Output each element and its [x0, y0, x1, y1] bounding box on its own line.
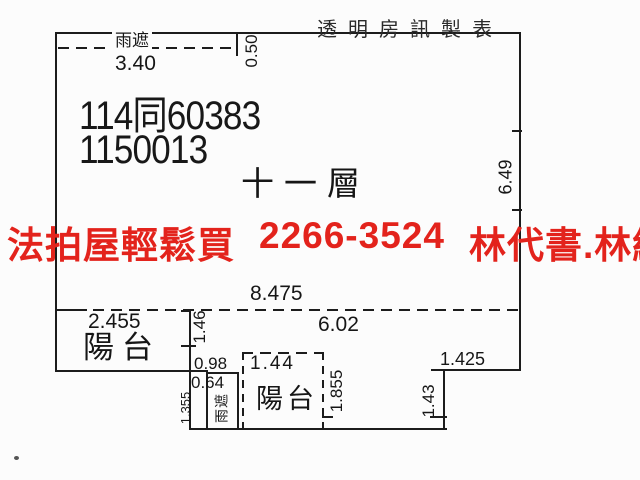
- rain-shelter-top-divider: [236, 32, 238, 56]
- dim-rain-bottom-height: 1.355: [179, 392, 193, 425]
- dim-balcony-bottom-width: 1.44: [250, 354, 295, 374]
- rain-shelter-bottom-label: 雨遮: [215, 393, 230, 423]
- rain-shelter-top-label: 雨遮: [112, 32, 152, 50]
- ad-banner: 法拍屋輕鬆買 2266-3524 林代書.林經理: [7, 215, 640, 269]
- dim-rain-bottom-width: 0.64: [191, 374, 224, 392]
- ad-phone-number: 2266-3524: [259, 215, 445, 269]
- dim-step-height: 1.43: [420, 384, 438, 417]
- serial-number: 1150013: [79, 129, 207, 171]
- tick-balcony-depth-top: [181, 310, 190, 312]
- balcony-left-bottom-wall: [55, 370, 208, 372]
- step-vertical-wall: [443, 369, 445, 430]
- ad-slogan: 法拍屋輕鬆買: [7, 215, 235, 269]
- balcony-left-label: 陽台: [83, 332, 161, 365]
- tick-balcony-depth-bottom: [181, 345, 196, 347]
- floor-label: 十一層: [241, 167, 370, 202]
- dim-right-wall-height: 6.49: [497, 159, 516, 194]
- balcony-bottom-box-left-dash: [242, 352, 244, 429]
- dim-interior-right-span: 6.02: [318, 314, 359, 336]
- floorplan-canvas: 透明房訊製表 114同60383 1150013 十一層 法拍屋輕鬆買 2266…: [0, 0, 640, 480]
- wall-left: [55, 32, 57, 372]
- tick-balcony-bottom-depth: [322, 416, 333, 418]
- scan-artifact-dot: [14, 456, 19, 460]
- balcony-bottom-label: 陽台: [256, 385, 318, 413]
- wall-right: [519, 32, 521, 371]
- dim-rain-top-depth: 0.50: [243, 34, 261, 67]
- ad-contacts: 林代書.林經理: [469, 215, 640, 269]
- dim-rain-top-width: 3.40: [115, 53, 156, 75]
- dim-balcony-left-width: 2.455: [88, 311, 141, 333]
- tick-interior-line-start: [55, 309, 87, 311]
- tick-right-wall-lower: [512, 209, 522, 211]
- maker-caption: 透明房訊製表: [317, 20, 503, 41]
- dim-gap-width: 0.98: [194, 355, 227, 373]
- dim-step-width: 1.425: [440, 350, 485, 369]
- dim-interior-span: 8.475: [250, 283, 303, 305]
- tick-right-wall-upper: [512, 130, 522, 132]
- dim-balcony-depth: 1.46: [191, 310, 209, 343]
- dim-balcony-bottom-depth: 1.855: [328, 370, 346, 413]
